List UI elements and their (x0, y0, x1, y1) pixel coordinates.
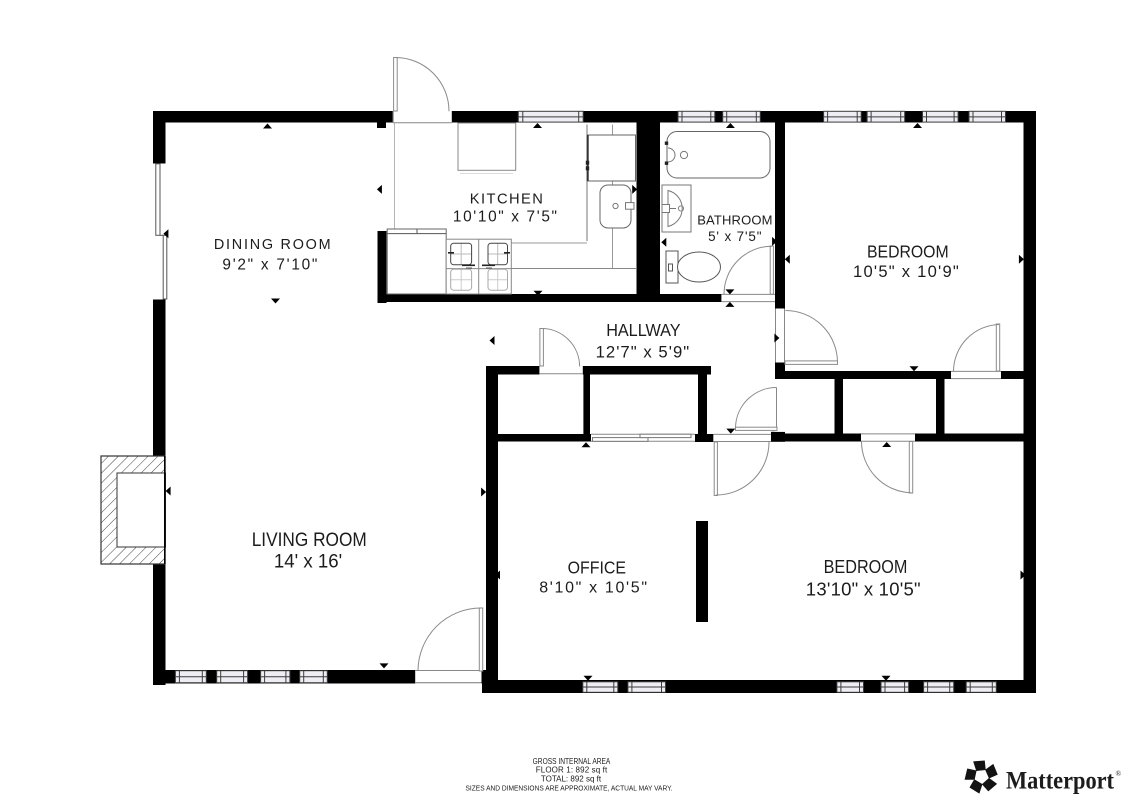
svg-text:BATHROOM: BATHROOM (697, 212, 772, 227)
svg-text:BEDROOM: BEDROOM (824, 557, 908, 577)
svg-text:GROSS INTERNAL AREA: GROSS INTERNAL AREA (533, 757, 611, 766)
svg-text:SIZES AND DIMENSIONS ARE APPRO: SIZES AND DIMENSIONS ARE APPROXIMATE, AC… (466, 784, 673, 793)
svg-text:HALLWAY: HALLWAY (606, 320, 681, 340)
svg-text:9'2" x 7'10": 9'2" x 7'10" (222, 257, 317, 274)
svg-text:14' x 16': 14' x 16' (274, 551, 342, 572)
svg-text:KITCHEN: KITCHEN (470, 192, 543, 208)
svg-text:10'10" x 7'5": 10'10" x 7'5" (453, 208, 557, 225)
svg-text:®: ® (1116, 769, 1122, 778)
svg-text:Matterport: Matterport (1006, 768, 1115, 795)
svg-text:5' x 7'5": 5' x 7'5" (708, 229, 762, 244)
svg-text:TOTAL: 892 sq ft: TOTAL: 892 sq ft (541, 774, 602, 783)
svg-text:OFFICE: OFFICE (568, 557, 627, 577)
svg-text:LIVING ROOM: LIVING ROOM (252, 529, 367, 551)
svg-text:12'7" x 5'9": 12'7" x 5'9" (596, 343, 690, 362)
svg-text:BEDROOM: BEDROOM (867, 241, 949, 261)
svg-text:FLOOR 1: 892 sq ft: FLOOR 1: 892 sq ft (536, 766, 608, 775)
svg-text:10'5" x 10'9": 10'5" x 10'9" (853, 262, 959, 281)
svg-text:8'10" x 10'5": 8'10" x 10'5" (539, 580, 647, 597)
svg-text:DINING ROOM: DINING ROOM (214, 237, 331, 253)
svg-text:13'10" x 10'5": 13'10" x 10'5" (806, 578, 921, 599)
